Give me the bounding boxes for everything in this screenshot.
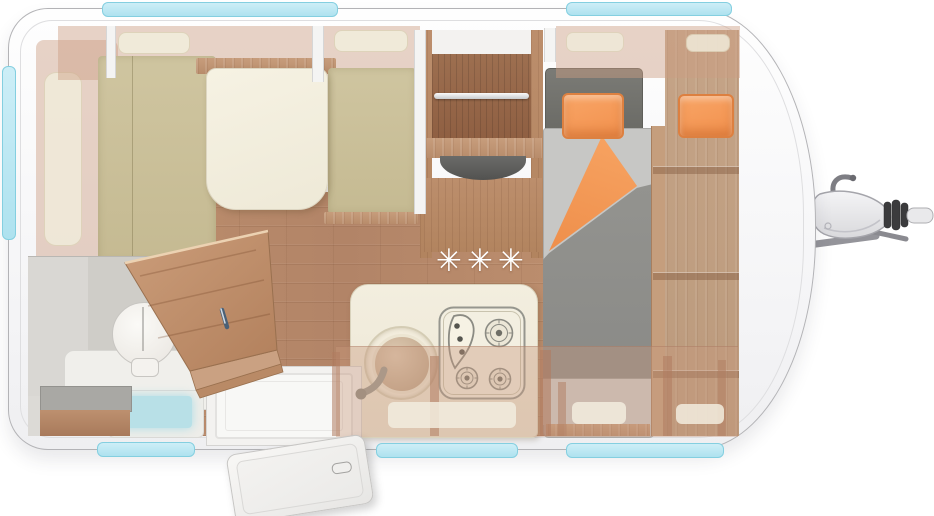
partition-wall [414, 30, 426, 214]
locker-panel [676, 404, 724, 424]
pillow [678, 94, 734, 138]
partition-wall [312, 26, 324, 82]
step-box-front [40, 410, 130, 436]
locker-divider [558, 382, 566, 436]
rear-locker-panel [44, 72, 82, 246]
heater-symbols: ✳ ✳ ✳ [436, 246, 524, 277]
door-panel-line [236, 443, 365, 515]
heater-asterisk-icon: ✳ [498, 246, 524, 277]
locker-divider [540, 350, 551, 436]
locker-divider [718, 360, 726, 436]
bed-locker-panel [566, 32, 624, 52]
locker-panel [572, 402, 626, 424]
bed-locker-panel [686, 34, 730, 52]
cabinet-shelf-line [653, 166, 739, 174]
top-locker-panel [118, 32, 190, 54]
window-bottom-2 [376, 443, 518, 458]
partition-wall [544, 28, 556, 62]
window-top-2 [566, 2, 732, 16]
window-top-1 [102, 2, 338, 17]
wardrobe-cabinet-top [424, 138, 542, 158]
dinette-seat-right [328, 68, 416, 214]
top-locker-panel [334, 30, 408, 52]
cabinet-shelf-line [653, 272, 739, 280]
caravan-floorplan: ✳ ✳ ✳ [0, 0, 934, 516]
wardrobe-base [424, 178, 542, 252]
wardrobe-ceiling [432, 30, 531, 56]
window-bottom-3 [566, 443, 724, 458]
bathroom-door [106, 218, 286, 408]
locker-divider [663, 356, 672, 436]
locker-divider [332, 352, 340, 436]
pillow [562, 93, 624, 139]
window-rear [2, 66, 16, 240]
partition-wall [106, 26, 116, 78]
locker-panel [388, 402, 516, 428]
dinette-table [206, 68, 328, 210]
heater-asterisk-icon: ✳ [436, 246, 462, 277]
window-bottom-1 [97, 442, 195, 457]
heater-asterisk-icon: ✳ [467, 246, 493, 277]
wardrobe-rail [434, 93, 529, 99]
seat-front-trim [324, 212, 418, 224]
